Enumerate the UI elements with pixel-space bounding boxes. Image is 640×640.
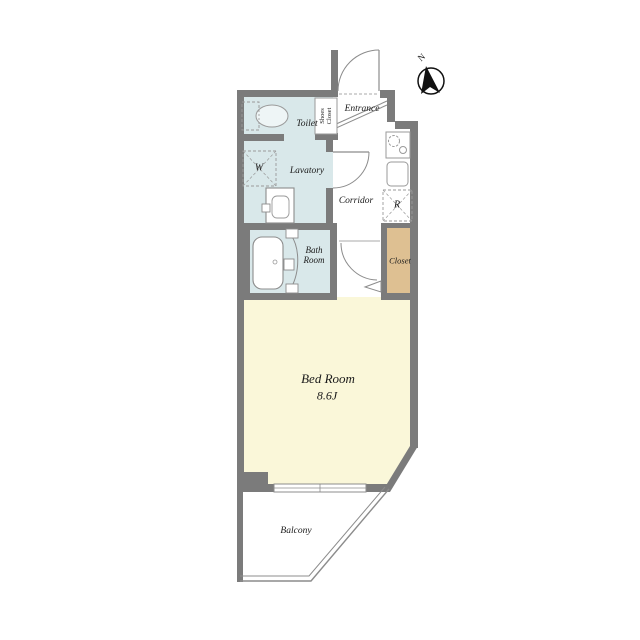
wall-right: [410, 129, 418, 448]
shoes-closet-label: Shoes Closet: [319, 108, 333, 125]
refrigerator-label: R: [394, 200, 400, 211]
railing-inner: [240, 487, 385, 576]
entrance-door: [334, 50, 387, 129]
entrance-label: Entrance: [345, 104, 380, 114]
entrance-door-arc: [338, 50, 379, 91]
bath-door-jamb-top: [286, 229, 298, 238]
balcony-window: [274, 484, 366, 492]
wall-top-right: [380, 90, 395, 98]
bedroom-door-stop: [365, 281, 381, 292]
bathtub: [253, 237, 283, 289]
floorplan-page: Toilet Shoes Closet Entrance Lavatory W …: [0, 0, 640, 640]
shoes-closet-label-line1: Shoes: [319, 108, 326, 125]
toilet-bowl: [256, 105, 288, 127]
lavatory-door-arc: [333, 152, 369, 188]
balcony-railing: [240, 487, 389, 581]
wall-top: [237, 90, 338, 97]
lavatory-label: Lavatory: [290, 166, 324, 176]
balcony-label: Balcony: [280, 526, 311, 536]
vanity-handle: [262, 204, 270, 212]
bath-door-handle: [284, 259, 294, 270]
washer-label: W: [255, 163, 263, 174]
wall-closet-bottom: [381, 293, 418, 300]
bathtub-fixture: [253, 237, 283, 289]
wall-bath-left: [244, 230, 250, 293]
railing-outer: [240, 489, 389, 581]
wall-right-upper: [387, 98, 395, 122]
bath-label: Bath Room: [304, 246, 325, 266]
wall-left: [237, 90, 244, 492]
wall-bath-bottom: [237, 293, 337, 300]
wall-right-step: [395, 121, 418, 129]
wall-entrance-left: [331, 50, 338, 97]
wall-closet-left: [381, 223, 387, 300]
floorplan-svg: [0, 0, 640, 640]
bedroom-size: 8.6J: [317, 389, 337, 402]
north-compass: [418, 66, 444, 94]
wall-bottom-left: [262, 484, 274, 492]
wall-lavatory-corridor-lower: [326, 188, 333, 223]
bedroom-door: [339, 241, 381, 292]
bedroom-label: Bed Room: [301, 372, 355, 386]
vanity-basin: [272, 196, 289, 218]
wall-lavatory-corridor-upper: [326, 133, 333, 152]
kitchen-fixtures: [386, 132, 410, 186]
wall-bath-right: [330, 223, 337, 300]
lavatory-door: [333, 152, 369, 188]
bath-door-jamb-bottom: [286, 284, 298, 293]
bath-label-line2: Room: [304, 256, 325, 266]
vanity-fixture: [262, 188, 294, 223]
corridor-label: Corridor: [339, 196, 373, 206]
wall-balcony-left: [237, 492, 243, 582]
bedroom-door-arc: [341, 243, 377, 280]
toilet-label: Toilet: [296, 119, 317, 129]
closet-label: Closet: [389, 256, 411, 265]
kitchen-sink: [387, 162, 408, 186]
shoes-closet-label-line2: Closet: [326, 108, 333, 125]
wall-toilet-stub: [237, 134, 284, 141]
